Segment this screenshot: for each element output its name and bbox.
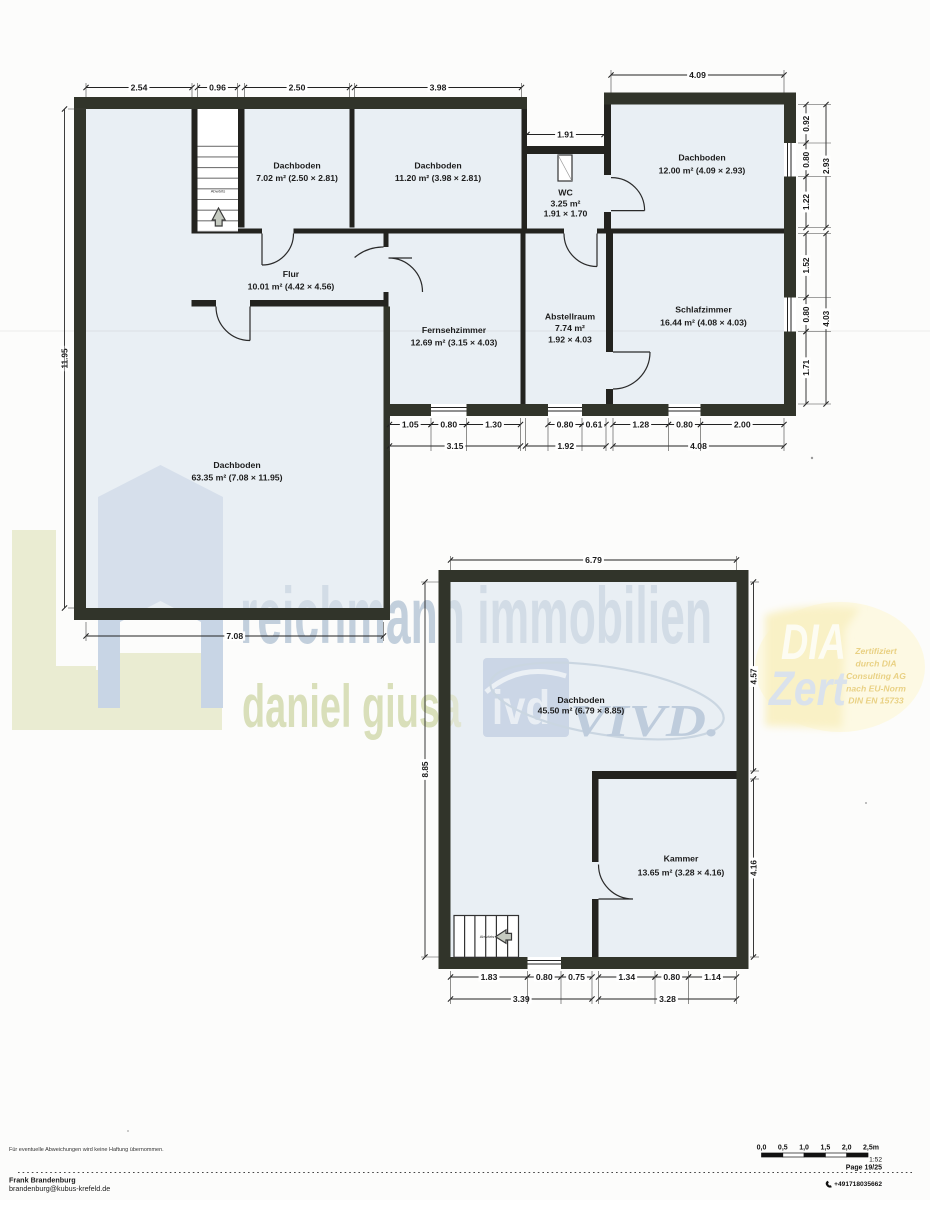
svg-text:2.54: 2.54	[131, 83, 148, 93]
svg-text:63.35 m² (7.08 × 11.95): 63.35 m² (7.08 × 11.95)	[191, 473, 282, 483]
svg-text:Consulting AG: Consulting AG	[846, 671, 906, 681]
svg-text:2.93: 2.93	[822, 158, 831, 174]
svg-text:1.14: 1.14	[704, 972, 721, 982]
svg-text:10.01 m² (4.42 × 4.56): 10.01 m² (4.42 × 4.56)	[248, 282, 335, 292]
svg-text:11.20 m² (3.98 × 2.81): 11.20 m² (3.98 × 2.81)	[395, 173, 481, 183]
svg-text:1,0: 1,0	[799, 1145, 809, 1152]
svg-text:Dachboden: Dachboden	[213, 460, 260, 470]
svg-text:Für eventuelle Abweichungen wi: Für eventuelle Abweichungen wird keine H…	[9, 1147, 164, 1153]
svg-text:Dachboden: Dachboden	[557, 695, 604, 705]
svg-text:4.03: 4.03	[822, 310, 831, 326]
svg-text:Dachboden: Dachboden	[273, 161, 320, 171]
svg-text:WC: WC	[558, 188, 573, 198]
svg-text:nach EU-Norm: nach EU-Norm	[846, 684, 906, 694]
svg-text:Dachboden: Dachboden	[414, 161, 461, 171]
svg-text:8.85: 8.85	[421, 761, 430, 777]
svg-text:1,5: 1,5	[821, 1145, 831, 1152]
svg-text:3.25 m²: 3.25 m²	[551, 199, 581, 209]
svg-text:0.61: 0.61	[586, 420, 603, 430]
svg-text:3.98: 3.98	[430, 83, 447, 93]
svg-text:Abwärts: Abwärts	[480, 934, 494, 939]
svg-text:1.71: 1.71	[802, 359, 811, 375]
svg-text:0,5: 0,5	[778, 1145, 788, 1152]
svg-text:0.80: 0.80	[802, 151, 811, 167]
svg-text:0.80: 0.80	[557, 420, 574, 430]
svg-text:0.80: 0.80	[676, 420, 693, 430]
svg-text:1.22: 1.22	[802, 194, 811, 210]
svg-text:brandenburg@kubus-krefeld.de: brandenburg@kubus-krefeld.de	[9, 1184, 110, 1193]
svg-text:durch DIA: durch DIA	[855, 659, 896, 669]
svg-text:4.08: 4.08	[690, 441, 707, 451]
svg-text:4.57: 4.57	[750, 668, 759, 684]
svg-text:Kammer: Kammer	[664, 854, 699, 864]
svg-text:daniel giusa: daniel giusa	[242, 673, 461, 740]
svg-text:1.92: 1.92	[557, 441, 574, 451]
svg-text:7.02 m² (2.50 × 2.81): 7.02 m² (2.50 × 2.81)	[256, 173, 338, 183]
svg-text:2,5m: 2,5m	[863, 1145, 879, 1152]
svg-text:0.80: 0.80	[663, 972, 680, 982]
svg-text:1.91 × 1.70: 1.91 × 1.70	[544, 209, 588, 219]
svg-text:1.52: 1.52	[802, 257, 811, 273]
svg-text:1.28: 1.28	[632, 420, 649, 430]
svg-text:12.00 m² (4.09 × 2.93): 12.00 m² (4.09 × 2.93)	[659, 166, 746, 176]
svg-text:1.91: 1.91	[557, 130, 574, 140]
svg-text:0,0: 0,0	[757, 1145, 767, 1152]
svg-text:Zertifiziert: Zertifiziert	[854, 646, 898, 656]
svg-text:DIN EN 15733: DIN EN 15733	[848, 696, 904, 706]
svg-text:Schlafzimmer: Schlafzimmer	[675, 305, 732, 315]
svg-text:45.50 m² (6.79 × 8.85): 45.50 m² (6.79 × 8.85)	[538, 706, 625, 716]
svg-text:2.50: 2.50	[289, 83, 306, 93]
svg-text:7.74 m²: 7.74 m²	[555, 323, 585, 333]
svg-text:1.34: 1.34	[618, 972, 635, 982]
svg-text:6.79: 6.79	[585, 555, 602, 565]
svg-text:1.30: 1.30	[485, 420, 502, 430]
svg-text:Abstellraum: Abstellraum	[545, 312, 595, 322]
svg-text:Dachboden: Dachboden	[678, 153, 725, 163]
svg-text:0.80: 0.80	[802, 306, 811, 322]
svg-text:1:52: 1:52	[869, 1157, 882, 1164]
svg-text:1.92 × 4.03: 1.92 × 4.03	[548, 335, 592, 345]
svg-text:0.80: 0.80	[536, 972, 553, 982]
svg-text:+491718035662: +491718035662	[834, 1181, 882, 1188]
svg-text:3.28: 3.28	[659, 994, 676, 1004]
svg-text:0.92: 0.92	[802, 115, 811, 131]
svg-text:Zert: Zert	[767, 663, 847, 716]
svg-text:0.75: 0.75	[568, 972, 585, 982]
svg-text:1.83: 1.83	[481, 972, 498, 982]
svg-text:12.69 m² (3.15 × 4.03): 12.69 m² (3.15 × 4.03)	[411, 338, 498, 348]
svg-text:Page 19/25: Page 19/25	[846, 1165, 882, 1172]
svg-text:2,0: 2,0	[842, 1145, 852, 1152]
svg-text:1.05: 1.05	[402, 420, 419, 430]
svg-text:Abwärts: Abwärts	[211, 188, 225, 193]
svg-text:16.44 m² (4.08 × 4.03): 16.44 m² (4.08 × 4.03)	[660, 318, 747, 328]
svg-text:13.65 m² (3.28 × 4.16): 13.65 m² (3.28 × 4.16)	[638, 868, 725, 878]
svg-text:0.80: 0.80	[440, 420, 457, 430]
svg-text:7.08: 7.08	[226, 631, 243, 641]
svg-text:DIA: DIA	[781, 614, 846, 670]
svg-text:4.16: 4.16	[750, 860, 759, 876]
svg-text:3.15: 3.15	[447, 441, 464, 451]
svg-text:Flur: Flur	[283, 269, 300, 279]
svg-text:0.96: 0.96	[209, 83, 226, 93]
svg-text:2.00: 2.00	[734, 420, 751, 430]
svg-text:4.09: 4.09	[689, 70, 706, 80]
svg-text:11.95: 11.95	[61, 348, 70, 368]
svg-text:Fernsehzimmer: Fernsehzimmer	[422, 325, 487, 335]
